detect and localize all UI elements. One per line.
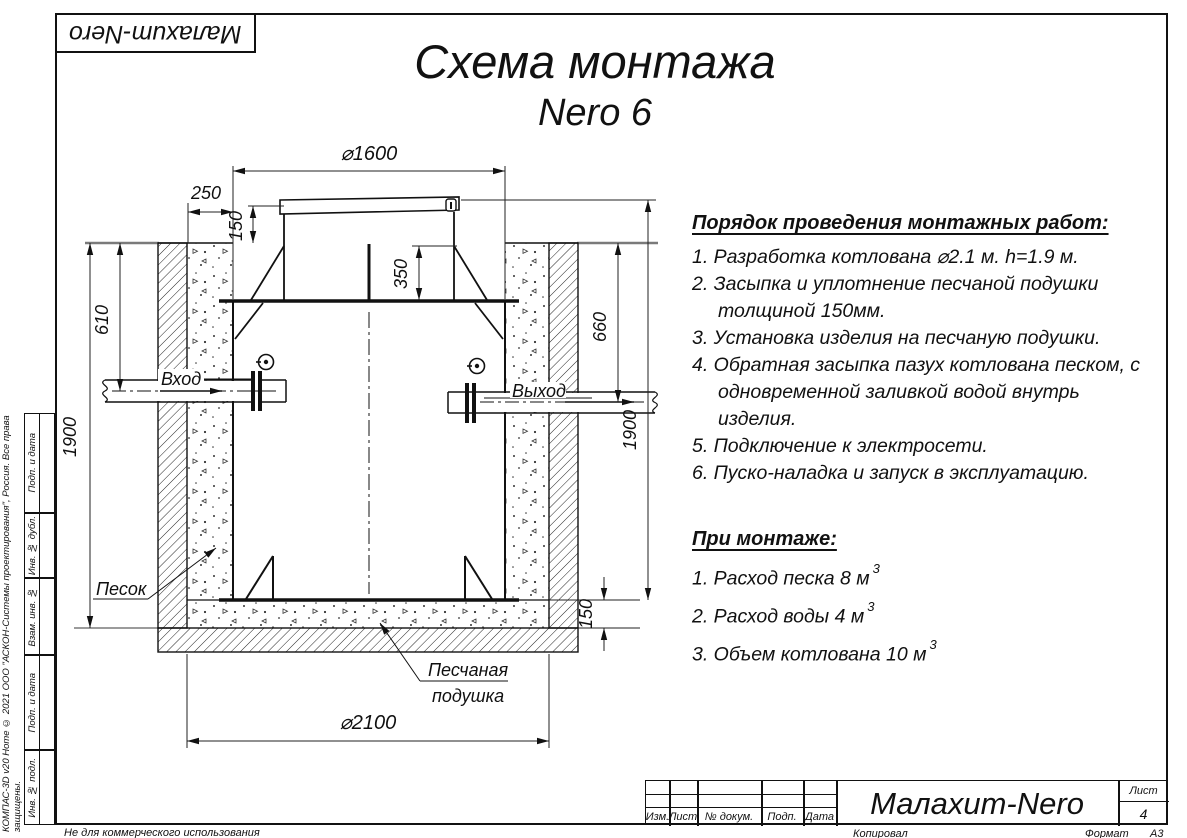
dim-pit-diameter: ⌀2100 [340,712,397,734]
dim-side-offset: 250 [190,183,221,203]
dim-outlet-depth: 660 [590,312,610,342]
tb-col-ndocum: № докум. [697,807,761,826]
fitting-icon [256,355,274,370]
cushion-label-line1: Песчаная [428,660,508,680]
tb-col-podp: Подп. [761,807,803,826]
tb-doc-title: Малахит-Nero [836,781,1118,826]
tb-col-izm: Изм. [646,807,669,826]
cushion-label-line2: подушка [432,686,504,706]
dim-pit-depth-right: 1900 [620,410,640,450]
outlet-label: Выход [512,381,566,401]
tb-col-list: Лист [669,807,697,826]
tb-sheet-label: Лист [1118,781,1169,801]
dim-cushion-thickness: 150 [576,599,596,629]
non-commercial-note: Не для коммерческого использования [64,827,260,838]
format-value: А3 [1150,828,1163,838]
tb-sheet-number: 4 [1118,801,1169,826]
sand-label: Песок [96,579,148,599]
title-block: Изм. Лист № докум. Подп. Дата Малахит-Ne… [645,780,1168,825]
inlet-label: Вход [161,369,201,389]
dim-top-diameter: ⌀1600 [341,143,398,165]
dim-neck-depth: 350 [391,259,411,289]
drawing-sheet: Малахит-Nero Схема монтажа Nero 6 КОМПАС… [0,0,1187,838]
installation-drawing: ⌀1600 250 150 350 610 1900 660 1900 150 … [0,0,1187,838]
format-label: Формат [1085,828,1129,838]
tank-lid [280,197,459,214]
tb-col-data: Дата [803,807,836,826]
dim-inlet-depth: 610 [92,305,112,335]
dim-pit-depth-left: 1900 [60,417,80,457]
kopiroval-label: Копировал [853,828,908,838]
dim-lid-height: 150 [226,211,246,241]
fitting-icon [467,359,485,374]
